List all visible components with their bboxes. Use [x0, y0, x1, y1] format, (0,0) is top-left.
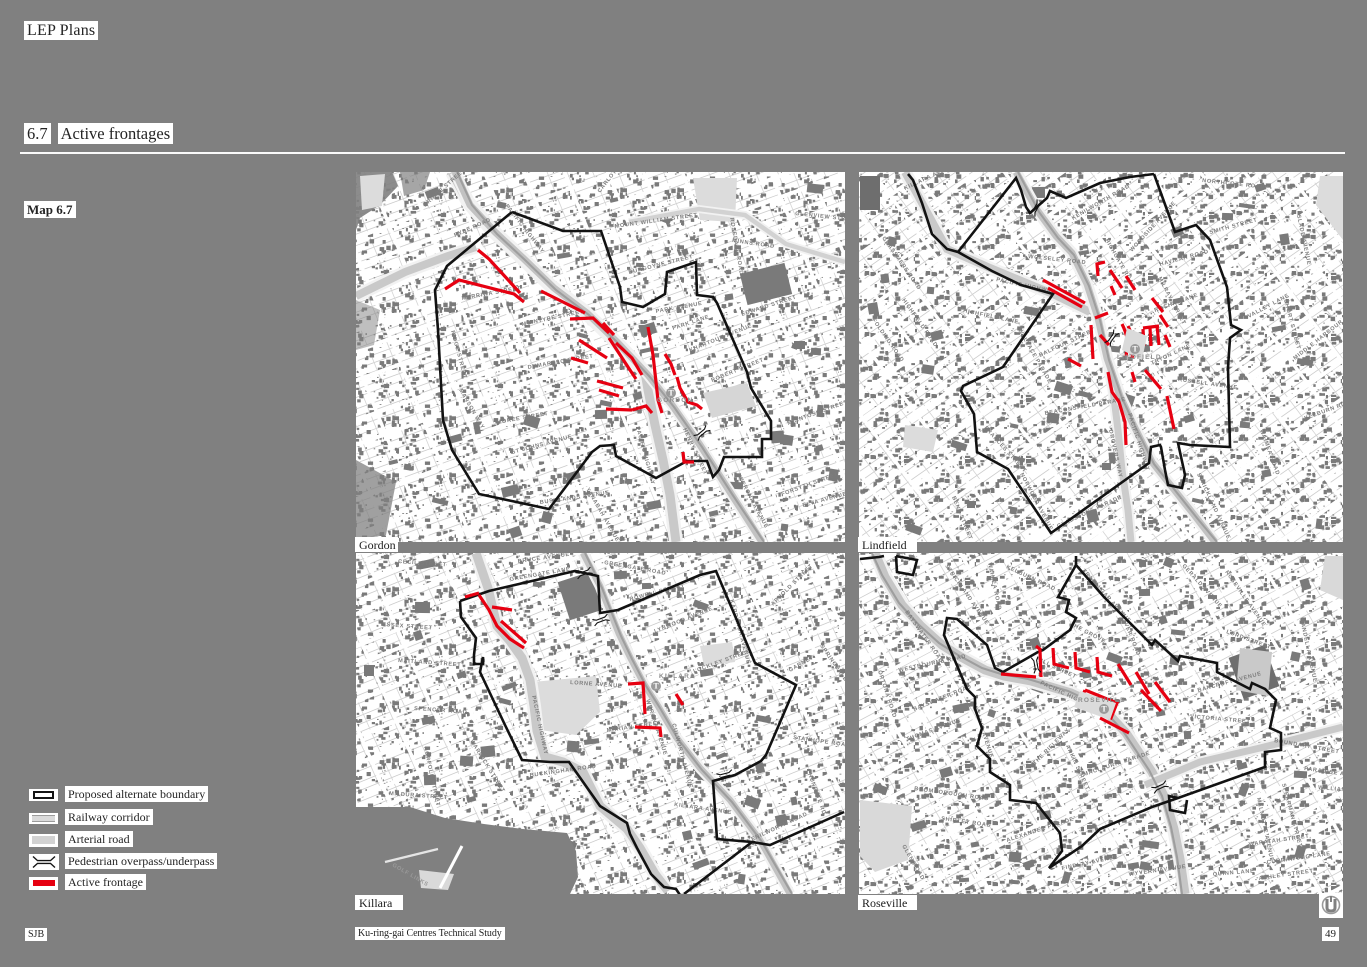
svg-text:Killara: Killara	[359, 896, 393, 910]
svg-text:Lindfield: Lindfield	[862, 538, 907, 552]
svg-text:Gordon: Gordon	[359, 538, 396, 552]
svg-text:GORDON: GORDON	[657, 397, 693, 404]
svg-text:LINDFIELD: LINDFIELD	[1117, 354, 1162, 361]
svg-text:KILLARA: KILLARA	[659, 673, 696, 680]
svg-text:T: T	[1101, 705, 1107, 714]
svg-text:Roseville: Roseville	[862, 896, 907, 910]
svg-text:T: T	[653, 682, 659, 691]
svg-text:T: T	[1132, 345, 1138, 354]
svg-text:ROSEVILLE: ROSEVILLE	[1078, 697, 1126, 704]
